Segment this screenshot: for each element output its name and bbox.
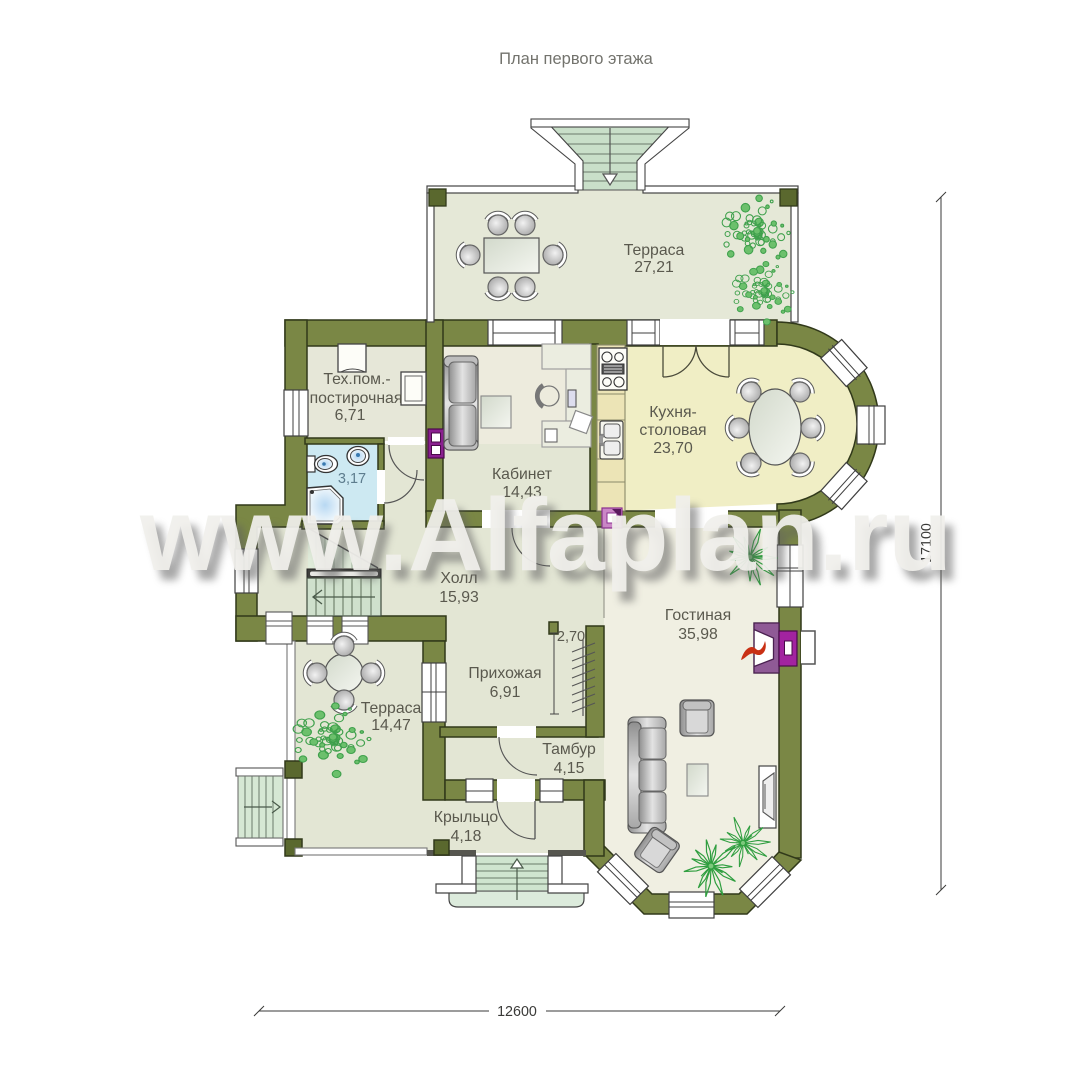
svg-text:6,91: 6,91	[490, 684, 521, 701]
svg-text:27,21: 27,21	[634, 259, 674, 276]
svg-text:6,71: 6,71	[335, 407, 366, 424]
svg-text:14,47: 14,47	[371, 717, 411, 734]
svg-text:2,70: 2,70	[557, 629, 585, 645]
svg-text:Тех.пом.-: Тех.пом.-	[323, 371, 390, 388]
svg-text:www.Alfaplan.ru: www.Alfaplan.ru	[139, 477, 952, 592]
svg-text:Гостиная: Гостиная	[665, 607, 731, 624]
svg-text:Крыльцо: Крыльцо	[434, 809, 499, 826]
svg-text:Терраса: Терраса	[624, 242, 685, 259]
svg-text:4,15: 4,15	[554, 760, 585, 777]
svg-text:Терраса: Терраса	[361, 700, 422, 717]
svg-text:столовая: столовая	[639, 422, 706, 439]
svg-text:12600: 12600	[497, 1004, 537, 1020]
svg-text:Кухня-: Кухня-	[649, 404, 697, 421]
svg-text:Прихожая: Прихожая	[468, 665, 541, 682]
svg-text:4,18: 4,18	[451, 828, 482, 845]
svg-text:23,70: 23,70	[653, 440, 693, 457]
svg-text:постирочная: постирочная	[310, 390, 403, 407]
svg-text:35,98: 35,98	[678, 626, 718, 643]
svg-text:Тамбур: Тамбур	[542, 741, 596, 758]
svg-text:План первого этажа: План первого этажа	[499, 50, 653, 68]
